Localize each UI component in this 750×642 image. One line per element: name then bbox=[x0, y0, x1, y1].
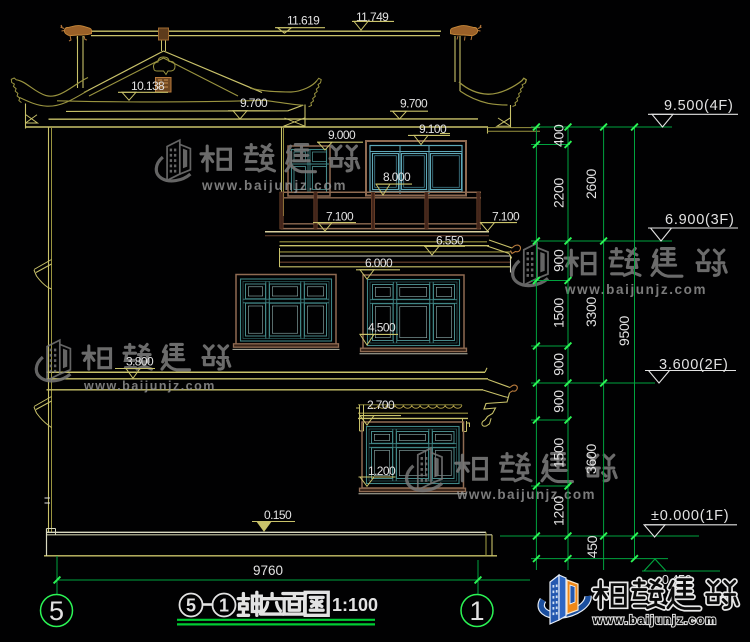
svg-text:9.500(4F): 9.500(4F) bbox=[664, 98, 734, 114]
svg-text:7.100: 7.100 bbox=[492, 210, 520, 224]
svg-text:www.baijunjz.com: www.baijunjz.com bbox=[564, 282, 707, 297]
svg-text:11.619: 11.619 bbox=[287, 14, 320, 28]
svg-text:www.baijunjz.com: www.baijunjz.com bbox=[456, 487, 596, 502]
svg-text:4.500: 4.500 bbox=[368, 321, 396, 335]
svg-text:9.700: 9.700 bbox=[400, 97, 428, 111]
svg-text:www.baijunjz.com: www.baijunjz.com bbox=[592, 613, 717, 627]
svg-text:9760: 9760 bbox=[253, 563, 283, 578]
svg-text:1500: 1500 bbox=[551, 298, 567, 328]
svg-text:6.000: 6.000 bbox=[365, 256, 393, 270]
svg-text:3.800: 3.800 bbox=[126, 355, 154, 369]
svg-text:2600: 2600 bbox=[583, 169, 599, 199]
svg-text:450: 450 bbox=[584, 535, 600, 558]
svg-text:6.900(3F): 6.900(3F) bbox=[665, 212, 735, 228]
svg-text:3600: 3600 bbox=[583, 444, 599, 474]
svg-text:www.baijunjz.com: www.baijunjz.com bbox=[83, 379, 216, 393]
svg-text:10.138: 10.138 bbox=[131, 79, 165, 93]
svg-text:8.000: 8.000 bbox=[383, 170, 411, 184]
svg-text:0.150: 0.150 bbox=[264, 508, 292, 522]
svg-text:900: 900 bbox=[551, 390, 567, 413]
svg-text:3300: 3300 bbox=[583, 297, 599, 327]
svg-text:2.700: 2.700 bbox=[367, 398, 395, 412]
svg-text:1: 1 bbox=[219, 596, 229, 616]
svg-text:1500: 1500 bbox=[551, 438, 567, 468]
svg-text:1200: 1200 bbox=[551, 496, 567, 526]
svg-text:9.100: 9.100 bbox=[419, 122, 447, 136]
svg-text:5: 5 bbox=[186, 596, 196, 616]
svg-text:9.700: 9.700 bbox=[240, 96, 268, 110]
svg-text:1:100: 1:100 bbox=[332, 595, 378, 615]
svg-text:9.000: 9.000 bbox=[328, 128, 356, 142]
svg-text:900: 900 bbox=[551, 249, 567, 272]
svg-text:±0.000(1F): ±0.000(1F) bbox=[651, 508, 729, 524]
svg-text:9500: 9500 bbox=[616, 316, 632, 346]
svg-text:1: 1 bbox=[469, 596, 484, 626]
svg-text:7.100: 7.100 bbox=[326, 210, 354, 224]
svg-text:5: 5 bbox=[49, 596, 64, 626]
svg-text:2200: 2200 bbox=[551, 178, 567, 208]
svg-text:6.550: 6.550 bbox=[436, 234, 464, 248]
svg-text:1.200: 1.200 bbox=[368, 464, 396, 478]
svg-text:400: 400 bbox=[551, 124, 567, 147]
svg-text:900: 900 bbox=[551, 353, 567, 376]
svg-text:www.baijunjz.com: www.baijunjz.com bbox=[201, 178, 347, 193]
